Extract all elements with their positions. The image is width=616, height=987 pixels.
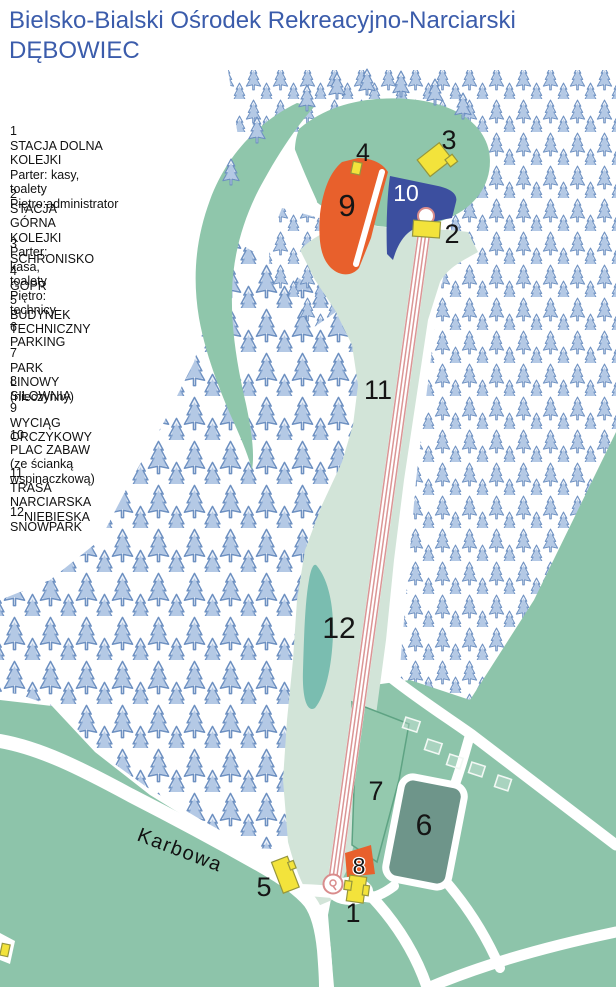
legend-item-4: 4 GOPR xyxy=(10,264,47,293)
legend-item-3: 3 SCHRONISKO xyxy=(10,237,94,266)
label-6: 6 xyxy=(416,809,433,842)
legend-item-8: 8 SIŁOWNIA xyxy=(10,374,71,403)
label-4: 4 xyxy=(356,139,370,167)
building-top-station xyxy=(412,220,440,238)
building-corner xyxy=(0,943,10,956)
title-line1: Bielsko-Bialski Ośrodek Rekreacyjno-Narc… xyxy=(9,6,516,36)
label-8: 8 xyxy=(353,853,366,879)
legend-num: 10 xyxy=(10,428,31,443)
legend-num: 8 xyxy=(10,374,31,389)
label-3: 3 xyxy=(441,125,456,155)
legend-item-12: 12 SNOWPARK xyxy=(10,505,82,534)
legend-num: 7 xyxy=(10,346,31,361)
label-5: 5 xyxy=(256,872,271,902)
legend-num: 3 xyxy=(10,237,31,252)
legend-num: 11 xyxy=(10,466,31,481)
page-title: Bielsko-Bialski Ośrodek Rekreacyjno-Narc… xyxy=(9,6,516,66)
legend-num: 4 xyxy=(10,264,31,279)
label-12: 12 xyxy=(322,612,355,645)
legend-line: GOPR xyxy=(10,279,47,294)
label-2: 2 xyxy=(444,219,459,249)
lift-bottom-terminal xyxy=(324,875,343,894)
label-7: 7 xyxy=(368,776,383,806)
resort-map-page: 1 2 3 4 5 6 7 8 9 10 11 12 Karbowa Biels… xyxy=(0,0,616,987)
legend-item-6: 6 PARKING xyxy=(10,320,65,349)
legend-line: SNOWPARK xyxy=(10,520,82,535)
title-line2: DĘBOWIEC xyxy=(9,36,516,66)
legend-num: 9 xyxy=(10,401,31,416)
legend-num: 5 xyxy=(10,293,31,308)
label-10: 10 xyxy=(393,180,419,206)
legend-line: STACJA DOLNA KOLEJKI xyxy=(10,139,118,168)
legend-num: 12 xyxy=(10,505,31,520)
legend-num: 6 xyxy=(10,320,31,335)
label-9: 9 xyxy=(338,188,355,223)
legend-num: 1 xyxy=(10,124,31,139)
legend-num: 2 xyxy=(10,187,31,202)
label-11: 11 xyxy=(364,375,392,405)
label-1: 1 xyxy=(345,898,360,928)
